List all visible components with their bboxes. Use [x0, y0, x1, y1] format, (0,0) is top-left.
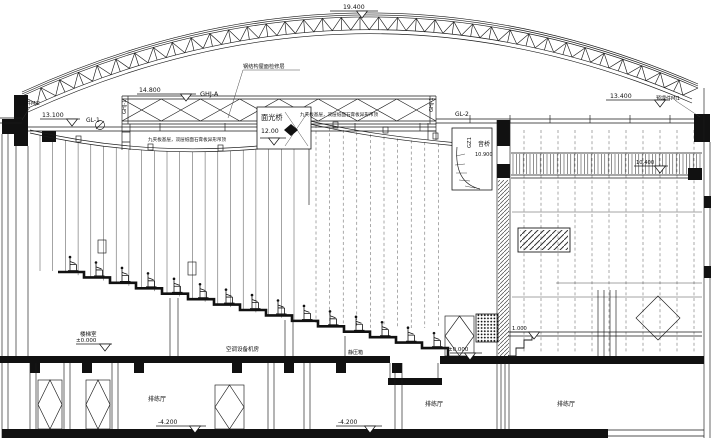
seating-rake-structure [58, 272, 448, 356]
footing [134, 363, 144, 373]
dotted-grille [476, 314, 498, 342]
label-rehearsal-mid: 排练厅 [425, 400, 443, 408]
roof-truss-vertical [434, 20, 435, 33]
label-gl2-name: GL-2 [455, 111, 469, 118]
label-slat-elevation: 10.400 [636, 160, 654, 166]
label-stage-elevation: 1.000 [512, 326, 527, 332]
architectural-section-sheet: 19.400 钢结构屋面检修层 14.800 GHJ-A 预埋件MJ2 13.1… [0, 0, 720, 444]
seat-icon [406, 326, 417, 341]
stage-house [508, 153, 702, 356]
label-sound-bridge: 音桥 [478, 140, 490, 148]
seat-icon [146, 272, 157, 287]
footing [392, 363, 402, 373]
basement-door [86, 380, 110, 429]
proscenium-wall [497, 120, 510, 356]
section-drawing-svg: 19.400 钢结构屋面检修层 14.800 GHJ-A 预埋件MJ2 13.1… [0, 0, 720, 444]
label-plenum: 静压箱 [348, 349, 363, 356]
label-ghja-elevation: 14.800 [139, 87, 161, 94]
label-ground-elevation-left: ±0.000 [76, 338, 97, 344]
roof-truss-vertical [304, 20, 305, 33]
basement [2, 363, 704, 438]
label-ceiling-note-right: 九夹板基层，双层纸面石膏板异形吊顶 [300, 111, 379, 118]
roof-truss-vertical [544, 38, 547, 50]
label-ceiling-note-left: 九夹板基层，双层纸面石膏板异形吊顶 [148, 136, 227, 143]
seat-icon [198, 283, 209, 298]
seat-icon [172, 278, 183, 293]
beam-gl2 [436, 119, 704, 123]
label-gz1: GZ1 [467, 137, 473, 148]
seat-icon [94, 261, 105, 276]
seat-icon [302, 305, 313, 320]
label-apex-elevation: 19.400 [343, 4, 365, 11]
label-gl1-elevation: 13.100 [42, 112, 64, 119]
ground-structure [0, 298, 704, 385]
wall-speaker-box [98, 240, 106, 253]
label-light-bridge-elevation: 12.00 [261, 128, 279, 135]
static-linework: 19.400 钢结构屋面检修层 14.800 GHJ-A 预埋件MJ2 13.1… [0, 4, 711, 438]
footing [30, 363, 40, 373]
label-rehearsal-right: 排练厅 [557, 400, 575, 408]
label-roof-note: 钢结构屋面检修层 [243, 62, 285, 70]
label-gl2-elevation: 13.400 [610, 93, 632, 100]
label-ghja-name: GHJ-A [200, 90, 219, 98]
stage-steps [508, 333, 532, 356]
beam-gl1 [28, 127, 436, 131]
roof-truss-vertical [135, 53, 139, 66]
label-basement-elev-mid: -4.200 [338, 419, 358, 426]
label-ac-room: 空调设备机房 [226, 345, 260, 353]
label-sound-bridge-elevation: 10.900 [475, 152, 493, 158]
label-gl1-name: GL-1 [86, 117, 100, 124]
stage-shaft [598, 290, 616, 356]
label-embed-right: 预埋件MJ1 [656, 95, 680, 102]
footing [284, 363, 294, 373]
roof-truss-vertical [172, 42, 175, 55]
seat-icon [432, 332, 443, 347]
footing [232, 363, 242, 373]
seat-icon [354, 316, 365, 331]
label-ghj1-right: GHJ-1 [429, 98, 435, 112]
roof-truss-vertical [415, 18, 416, 31]
roof-truss-vertical [285, 22, 286, 35]
ghja-brace [201, 99, 240, 121]
roof-truss-vertical [322, 18, 323, 31]
basement-door [215, 385, 244, 429]
label-ghj1-left: GHJ-1 [122, 100, 128, 114]
seat-icon [68, 256, 79, 271]
label-light-bridge: 面光桥 [261, 113, 283, 122]
stage-diamond-panel [636, 296, 680, 340]
label-basement-elev-left: -4.200 [158, 419, 178, 426]
roof-truss-vertical [397, 17, 398, 30]
basement-door [38, 380, 62, 429]
label-rehearsal-left: 排练厅 [148, 395, 166, 403]
seat-icon [224, 288, 235, 303]
footing [82, 363, 92, 373]
ghja-brace [161, 99, 200, 121]
label-stair-room: 楼梯室 [80, 330, 97, 338]
right-wall [688, 88, 711, 438]
wall-speaker-box [188, 262, 196, 275]
left-wall [0, 95, 105, 438]
seat-icon [250, 294, 261, 309]
auditorium-ceiling [30, 121, 458, 275]
seat-icon [328, 310, 339, 325]
label-embed-left: 预埋件MJ2 [16, 100, 40, 107]
footing [336, 363, 346, 373]
label-ground-elevation-right: ±0.000 [448, 347, 469, 353]
seat-icon [380, 321, 391, 336]
